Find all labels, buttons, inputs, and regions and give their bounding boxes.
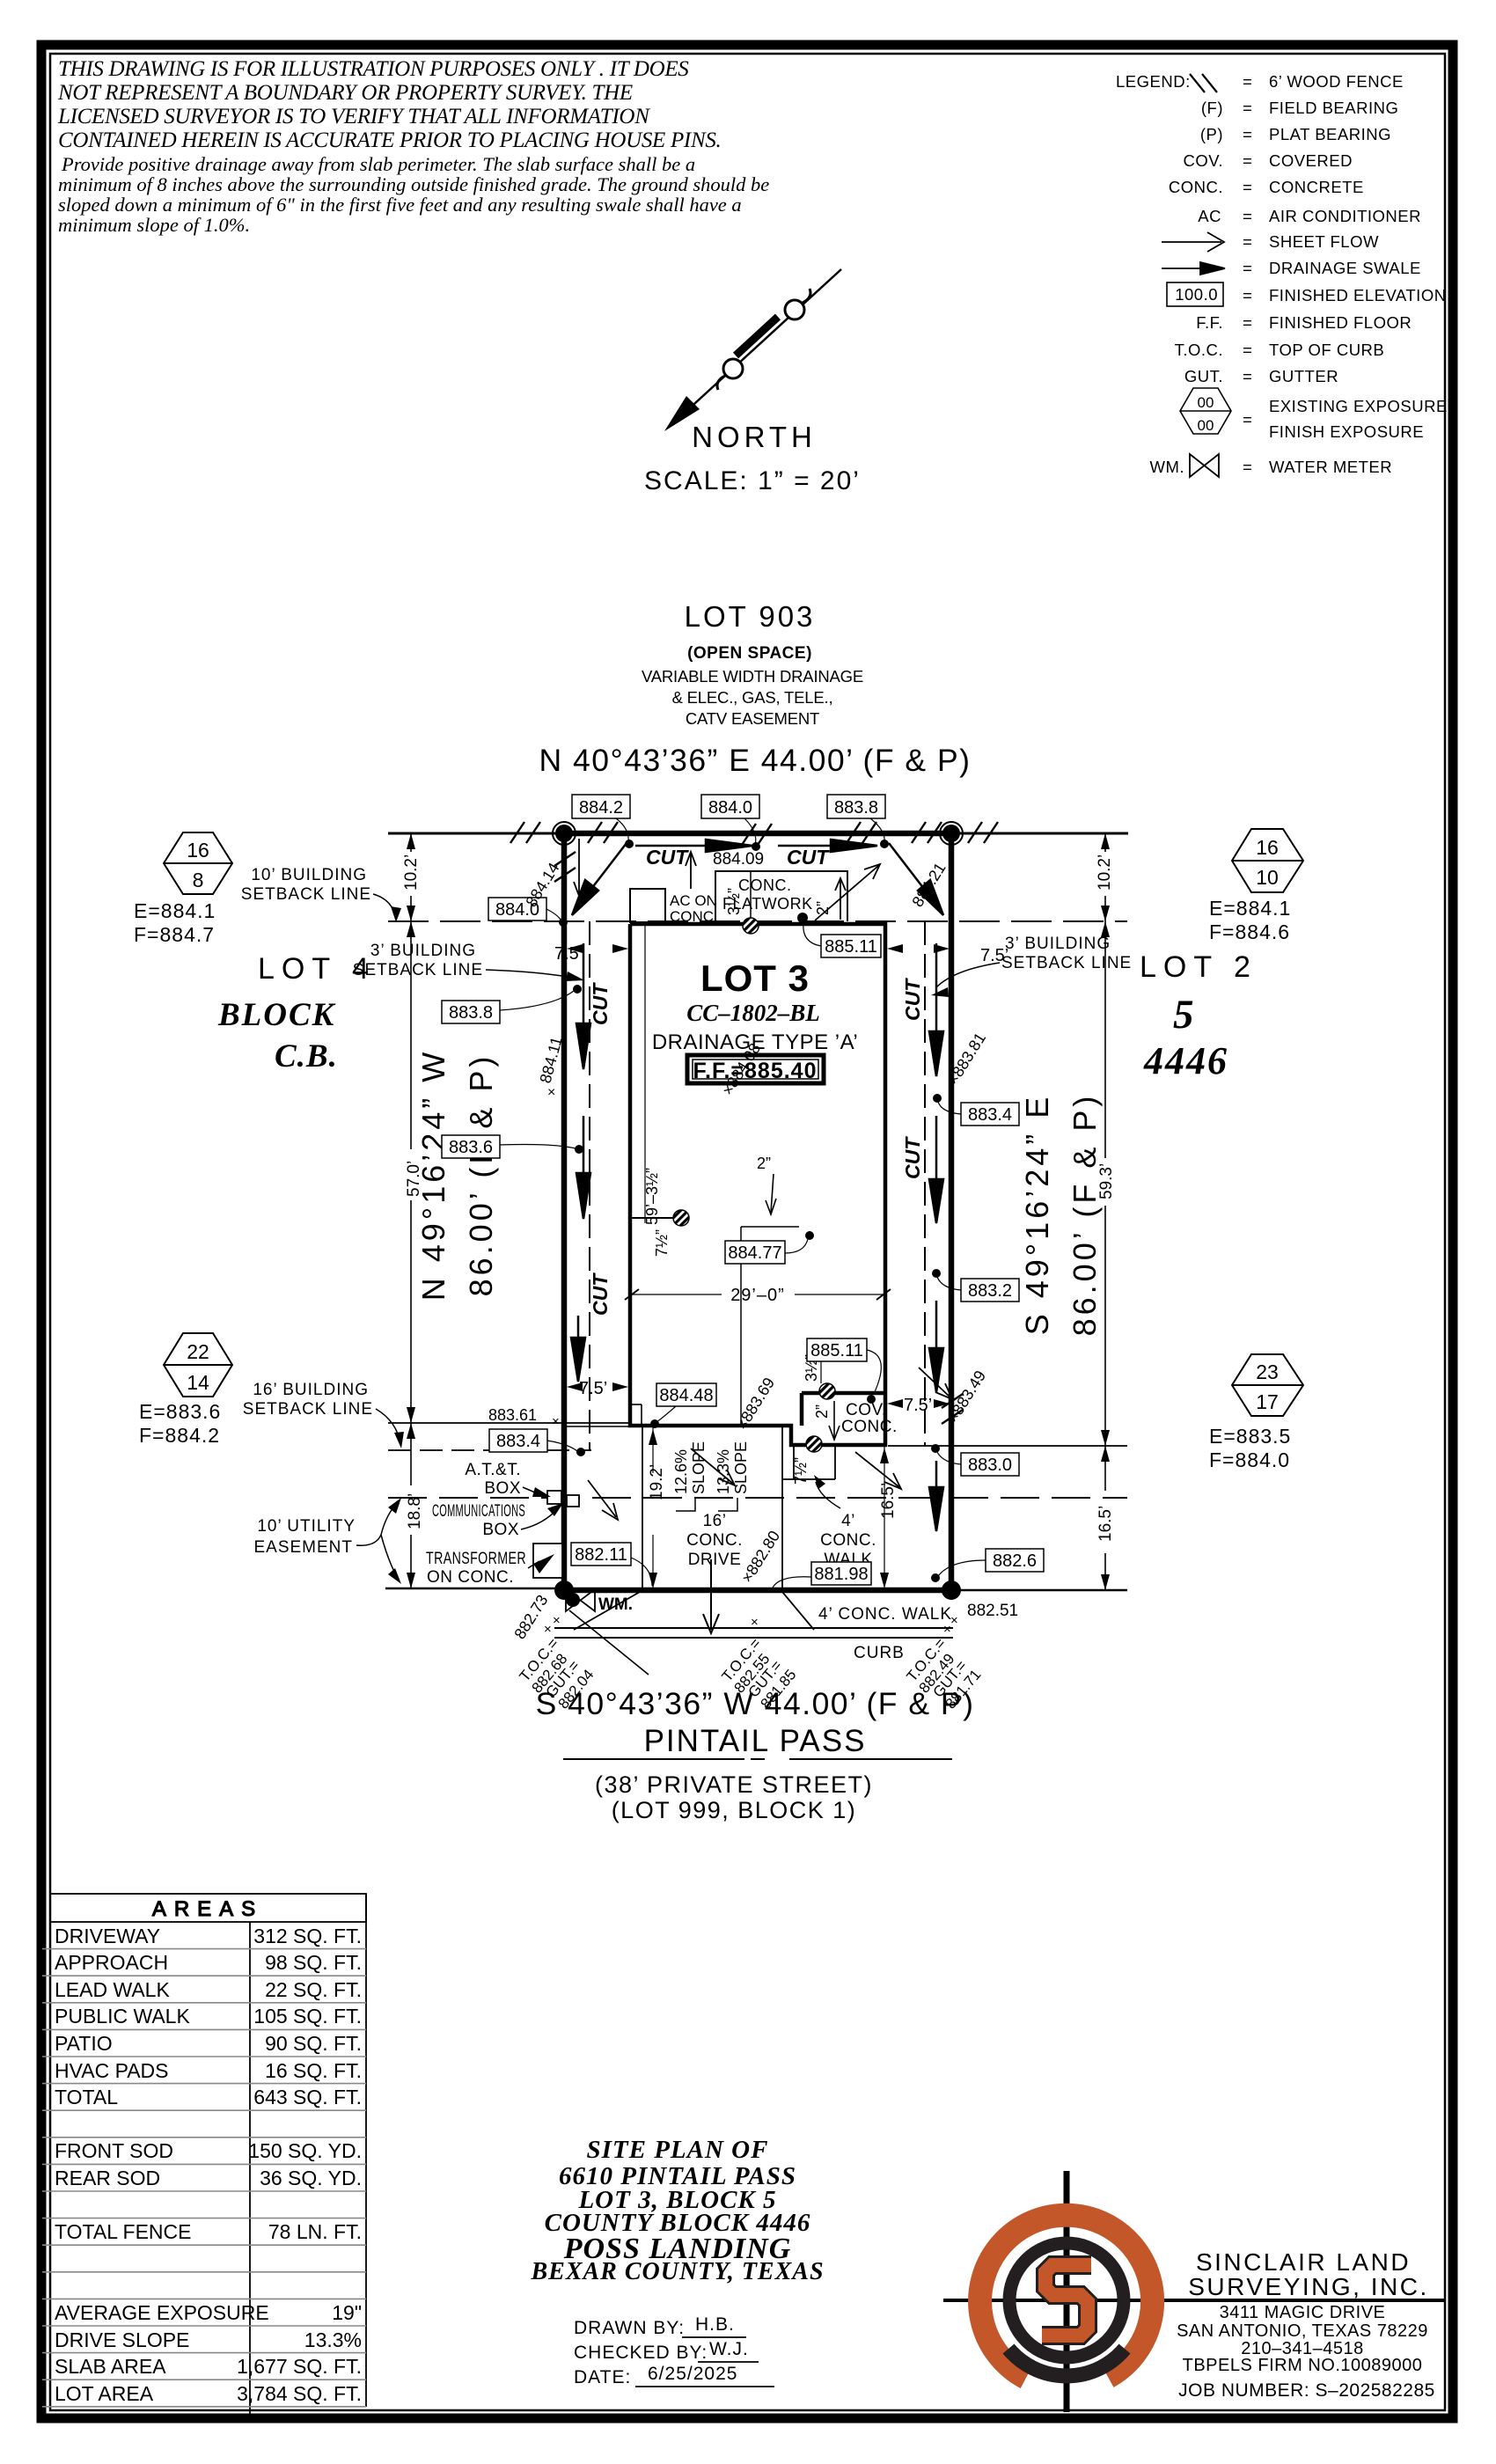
- svg-text:DRIVEWAY: DRIVEWAY: [55, 1925, 160, 1947]
- svg-text:TOP OF CURB: TOP OF CURB: [1269, 341, 1384, 359]
- svg-text:883.2: 883.2: [968, 1281, 1012, 1301]
- svg-text:F.F.: F.F.: [1196, 313, 1223, 332]
- svg-text:F=884.7: F=884.7: [134, 923, 215, 946]
- svg-text:minimum of 8 inches above the: minimum of 8 inches above the surroundin…: [58, 173, 769, 195]
- svg-text:DRAWN BY:: DRAWN BY:: [574, 2318, 685, 2338]
- svg-text:10.2’: 10.2’: [1096, 854, 1114, 891]
- svg-text:ON CONC.: ON CONC.: [427, 1568, 514, 1587]
- svg-text:FINISH EXPOSURE: FINISH EXPOSURE: [1269, 422, 1424, 441]
- svg-text:19.2’: 19.2’: [648, 1464, 666, 1500]
- svg-text:=: =: [1243, 410, 1252, 429]
- svg-text:90 SQ. FT.: 90 SQ. FT.: [265, 2032, 362, 2055]
- svg-text:CUT: CUT: [589, 982, 612, 1025]
- svg-text:BOX: BOX: [482, 1521, 519, 1539]
- svg-text:SETBACK LINE: SETBACK LINE: [1001, 954, 1132, 972]
- svg-text:CATV EASEMENT: CATV EASEMENT: [686, 709, 819, 728]
- svg-text:AIR CONDITIONER: AIR CONDITIONER: [1269, 207, 1421, 225]
- svg-text:885.11: 885.11: [825, 937, 877, 957]
- svg-text:(P): (P): [1200, 125, 1223, 143]
- svg-text:Provide positive drainage away: Provide positive drainage away from slab…: [61, 153, 695, 175]
- svg-text:CUT: CUT: [901, 1136, 924, 1179]
- svg-text:(F): (F): [1201, 99, 1223, 117]
- svg-text:7.5’: 7.5’: [554, 944, 583, 964]
- svg-text:884.77: 884.77: [728, 1243, 781, 1263]
- svg-text:884.2: 884.2: [579, 798, 623, 818]
- svg-text:16: 16: [1256, 836, 1279, 859]
- svg-text:883.6: 883.6: [449, 1138, 493, 1157]
- svg-text:882.11: 882.11: [575, 1545, 627, 1565]
- svg-text:7.5’: 7.5’: [579, 1379, 607, 1398]
- svg-text:12.6%: 12.6%: [672, 1449, 690, 1494]
- svg-text:NOT REPRESENT A BOUNDARY OR PR: NOT REPRESENT A BOUNDARY OR PROPERTY SUR…: [57, 81, 633, 105]
- svg-text:FIELD BEARING: FIELD BEARING: [1269, 99, 1398, 117]
- svg-text:=: =: [1243, 259, 1252, 277]
- svg-text:4’ CONC. WALK: 4’ CONC. WALK: [818, 1605, 952, 1624]
- svg-text:sloped down a minimum of 6" in: sloped down a minimum of 6" in the first…: [58, 194, 742, 216]
- svg-text:150 SQ. YD.: 150 SQ. YD.: [248, 2139, 362, 2162]
- svg-text:REAR SOD: REAR SOD: [55, 2167, 160, 2189]
- svg-text:884.48: 884.48: [659, 1386, 713, 1405]
- svg-text:LOT 903: LOT 903: [685, 600, 816, 633]
- svg-text:3½”: 3½”: [725, 888, 743, 915]
- svg-text:78 LN. FT.: 78 LN. FT.: [268, 2220, 362, 2243]
- svg-text:COV.: COV.: [1183, 151, 1223, 170]
- svg-text:E=884.1: E=884.1: [1209, 897, 1291, 920]
- svg-text:CONC.: CONC.: [686, 1531, 743, 1550]
- svg-text:FINISHED ELEVATION: FINISHED ELEVATION: [1269, 286, 1447, 304]
- svg-text:22: 22: [187, 1340, 209, 1363]
- svg-text:CUT: CUT: [646, 846, 689, 869]
- svg-text:105 SQ. FT.: 105 SQ. FT.: [253, 2005, 362, 2028]
- svg-text:COVERED: COVERED: [1269, 151, 1353, 170]
- svg-text:CONC.: CONC.: [738, 876, 792, 894]
- svg-text:SAN ANTONIO, TEXAS 78229: SAN ANTONIO, TEXAS 78229: [1177, 2321, 1428, 2341]
- svg-text:86.00’ (F & P): 86.00’ (F & P): [463, 1053, 499, 1297]
- svg-text:4446: 4446: [1143, 1039, 1228, 1082]
- svg-text:VARIABLE WIDTH DRAINAGE: VARIABLE WIDTH DRAINAGE: [642, 667, 863, 686]
- svg-text:EXISTING EXPOSURE: EXISTING EXPOSURE: [1269, 397, 1448, 415]
- svg-text:LICENSED SURVEYOR IS TO VERIFY: LICENSED SURVEYOR IS TO VERIFY THAT ALL …: [57, 105, 650, 128]
- svg-text:SITE PLAN OF: SITE PLAN OF: [587, 2136, 769, 2164]
- svg-text:00: 00: [1198, 417, 1214, 434]
- svg-text:883.8: 883.8: [449, 1003, 493, 1023]
- svg-text:16.5’: 16.5’: [1096, 1506, 1115, 1542]
- svg-text:TRANSFORMER: TRANSFORMER: [426, 1550, 526, 1568]
- svg-text:NORTH: NORTH: [692, 421, 817, 453]
- svg-text:883.0: 883.0: [968, 1456, 1012, 1475]
- svg-text:WM.: WM.: [1149, 458, 1184, 476]
- svg-text:GUT.: GUT.: [1184, 367, 1223, 385]
- svg-text:(LOT 999, BLOCK 1): (LOT 999, BLOCK 1): [612, 1797, 857, 1823]
- svg-text:CC–1802–BL: CC–1802–BL: [686, 1000, 820, 1026]
- svg-text:CONC.: CONC.: [841, 1418, 898, 1436]
- svg-text:DATE:: DATE:: [574, 2367, 631, 2387]
- svg-text:AC ON: AC ON: [670, 892, 717, 909]
- svg-text:312 SQ. FT.: 312 SQ. FT.: [253, 1925, 362, 1947]
- svg-text:883.8: 883.8: [834, 798, 878, 818]
- svg-text:×: ×: [552, 1414, 560, 1429]
- svg-text:HVAC PADS: HVAC PADS: [55, 2059, 169, 2082]
- svg-text:86.00’ (F & P): 86.00’ (F & P): [1067, 1093, 1103, 1337]
- svg-text:16: 16: [187, 839, 209, 862]
- svg-text:E=884.1: E=884.1: [134, 899, 216, 922]
- svg-text:PINTAIL PASS: PINTAIL PASS: [644, 1724, 867, 1758]
- svg-text:F=884.6: F=884.6: [1209, 920, 1290, 943]
- svg-text:LOT 2: LOT 2: [1140, 950, 1258, 984]
- svg-text:& ELEC., GAS, TELE.,: & ELEC., GAS, TELE.,: [672, 688, 833, 707]
- svg-text:=: =: [1243, 125, 1252, 143]
- svg-text:SLOPE: SLOPE: [732, 1441, 750, 1494]
- svg-text:8: 8: [193, 869, 204, 891]
- svg-text:LOT 3: LOT 3: [700, 957, 810, 999]
- svg-text:=: =: [1243, 72, 1252, 91]
- svg-text:LEGEND:: LEGEND:: [1116, 72, 1191, 91]
- svg-text:×: ×: [751, 1615, 759, 1630]
- svg-text:CUT: CUT: [589, 1272, 612, 1316]
- svg-text:JOB NUMBER: S–202582285: JOB NUMBER: S–202582285: [1178, 2380, 1435, 2401]
- svg-text:N 40°43’36” E 44.00’ (F & P): N 40°43’36” E 44.00’ (F & P): [539, 743, 972, 778]
- svg-text:LOT AREA: LOT AREA: [55, 2382, 154, 2405]
- svg-text:=: =: [1243, 313, 1252, 332]
- svg-text:(38’ PRIVATE STREET): (38’ PRIVATE STREET): [595, 1771, 873, 1798]
- svg-text:APPROACH: APPROACH: [55, 1951, 168, 1974]
- svg-text:883.61: 883.61: [488, 1406, 537, 1424]
- svg-text:5: 5: [1173, 992, 1194, 1038]
- svg-text:COV.: COV.: [846, 1401, 887, 1419]
- svg-text:FINISHED FLOOR: FINISHED FLOOR: [1269, 313, 1412, 332]
- svg-text:TBPELS FIRM NO.10089000: TBPELS FIRM NO.10089000: [1183, 2356, 1423, 2375]
- svg-text:PATIO: PATIO: [55, 2032, 113, 2055]
- svg-text:F=884.2: F=884.2: [139, 1424, 220, 1447]
- svg-text:T.O.C.: T.O.C.: [1175, 341, 1223, 359]
- svg-text:643 SQ. FT.: 643 SQ. FT.: [253, 2086, 362, 2108]
- svg-text:=: =: [1243, 232, 1252, 251]
- svg-text:CONCRETE: CONCRETE: [1269, 178, 1364, 196]
- svg-text:22 SQ. FT.: 22 SQ. FT.: [265, 1978, 362, 2001]
- svg-text:DRIVE: DRIVE: [688, 1551, 742, 1569]
- svg-text:3’ BUILDING: 3’ BUILDING: [370, 942, 476, 960]
- svg-text:LEAD WALK: LEAD WALK: [55, 1978, 170, 2001]
- svg-text:13.3%: 13.3%: [715, 1449, 732, 1494]
- svg-text:98 SQ. FT.: 98 SQ. FT.: [265, 1951, 362, 1974]
- svg-text:883.4: 883.4: [496, 1432, 540, 1451]
- svg-text:BOX: BOX: [484, 1479, 521, 1498]
- svg-text:S 49°16’24” E: S 49°16’24” E: [1019, 1094, 1055, 1336]
- svg-text:SHEET FLOW: SHEET FLOW: [1269, 232, 1379, 251]
- svg-text:WATER METER: WATER METER: [1269, 458, 1392, 476]
- svg-text:19": 19": [332, 2301, 362, 2324]
- svg-text:29’–0”: 29’–0”: [730, 1286, 785, 1305]
- svg-text:6’ WOOD FENCE: 6’ WOOD FENCE: [1269, 72, 1404, 91]
- svg-text:=: =: [1243, 286, 1252, 304]
- svg-text:CONC.: CONC.: [820, 1531, 876, 1550]
- svg-text:=: =: [1243, 178, 1252, 196]
- svg-text:10: 10: [1256, 866, 1279, 889]
- svg-text:×: ×: [544, 1622, 552, 1637]
- svg-text:E=883.5: E=883.5: [1209, 1425, 1291, 1448]
- svg-text:SETBACK LINE: SETBACK LINE: [243, 1400, 373, 1419]
- svg-text:AVERAGE EXPOSURE: AVERAGE EXPOSURE: [55, 2301, 269, 2324]
- svg-text:S 40°43’36” W 44.00’ (F & P): S 40°43’36” W 44.00’ (F & P): [536, 1686, 975, 1721]
- svg-text:59’–3½”: 59’–3½”: [643, 1168, 661, 1225]
- svg-text:AC: AC: [1198, 207, 1221, 225]
- svg-text:2”: 2”: [813, 1404, 831, 1419]
- svg-text:BLOCK: BLOCK: [217, 997, 336, 1033]
- svg-text:×: ×: [553, 1613, 561, 1628]
- svg-text:TOTAL FENCE: TOTAL FENCE: [55, 2220, 192, 2243]
- svg-text:CHECKED BY:: CHECKED BY:: [574, 2343, 708, 2363]
- svg-text:TOTAL: TOTAL: [55, 2086, 118, 2108]
- svg-text:=: =: [1243, 341, 1252, 359]
- svg-text:00: 00: [1198, 394, 1214, 411]
- svg-text:883.4: 883.4: [968, 1105, 1012, 1125]
- svg-text:16’: 16’: [703, 1512, 727, 1530]
- svg-text:AREAS: AREAS: [152, 1897, 263, 1921]
- svg-text:minimum slope of 1.0%.: minimum slope of 1.0%.: [58, 214, 250, 236]
- svg-text:18.8’: 18.8’: [406, 1493, 424, 1529]
- svg-text:6/25/2025: 6/25/2025: [648, 2364, 737, 2384]
- svg-text:7½”: 7½”: [792, 1457, 810, 1485]
- svg-text:CUT: CUT: [901, 978, 924, 1021]
- svg-text:PLAT BEARING: PLAT BEARING: [1269, 125, 1391, 143]
- svg-text:CONC.: CONC.: [670, 908, 718, 925]
- svg-text:884.0: 884.0: [708, 798, 752, 818]
- svg-text:7.5’: 7.5’: [904, 1396, 932, 1415]
- svg-text:4’: 4’: [841, 1512, 855, 1530]
- svg-text:SINCLAIR LAND: SINCLAIR LAND: [1196, 2248, 1411, 2276]
- svg-text:E=883.6: E=883.6: [139, 1400, 221, 1423]
- svg-text:882.6: 882.6: [993, 1551, 1037, 1571]
- svg-text:16.5’: 16.5’: [879, 1483, 898, 1519]
- svg-text:885.11: 885.11: [810, 1341, 863, 1360]
- svg-text:10’ BUILDING: 10’ BUILDING: [251, 866, 367, 884]
- svg-text:A.T.&T.: A.T.&T.: [465, 1461, 521, 1479]
- svg-text:3411 MAGIC DRIVE: 3411 MAGIC DRIVE: [1220, 2303, 1386, 2322]
- svg-text:882.51: 882.51: [967, 1602, 1018, 1620]
- svg-text:DRIVE SLOPE: DRIVE SLOPE: [55, 2328, 189, 2351]
- svg-text:=: =: [1243, 367, 1252, 385]
- svg-text:=: =: [1243, 151, 1252, 170]
- svg-text:881.98: 881.98: [814, 1565, 868, 1584]
- svg-text:GUTTER: GUTTER: [1269, 367, 1338, 385]
- svg-text:884.09: 884.09: [713, 850, 764, 869]
- svg-text:SLAB AREA: SLAB AREA: [55, 2355, 166, 2378]
- svg-text:COMMUNICATIONS: COMMUNICATIONS: [432, 1502, 525, 1521]
- svg-text:SCALE: 1” = 20’: SCALE: 1” = 20’: [644, 466, 861, 495]
- svg-text:1,677 SQ. FT.: 1,677 SQ. FT.: [237, 2355, 362, 2378]
- svg-text:=: =: [1243, 207, 1252, 225]
- svg-text:16 SQ. FT.: 16 SQ. FT.: [265, 2059, 362, 2082]
- svg-text:DRAINAGE SWALE: DRAINAGE SWALE: [1269, 259, 1421, 277]
- svg-text:BEXAR COUNTY, TEXAS: BEXAR COUNTY, TEXAS: [530, 2258, 824, 2285]
- svg-text:14: 14: [187, 1371, 209, 1394]
- svg-text:PUBLIC WALK: PUBLIC WALK: [55, 2005, 190, 2028]
- svg-text:=: =: [1243, 99, 1252, 117]
- svg-text:FRONT SOD: FRONT SOD: [55, 2139, 173, 2162]
- svg-text:SETBACK LINE: SETBACK LINE: [353, 961, 483, 979]
- svg-text:2”: 2”: [757, 1155, 771, 1172]
- svg-text:3’ BUILDING: 3’ BUILDING: [1005, 935, 1111, 953]
- svg-text:CURB: CURB: [854, 1644, 905, 1662]
- svg-text:EASEMENT: EASEMENT: [253, 1538, 353, 1557]
- svg-text:7½”: 7½”: [653, 1229, 671, 1257]
- svg-text:(OPEN SPACE): (OPEN SPACE): [687, 644, 812, 663]
- svg-text:×: ×: [547, 1085, 555, 1100]
- svg-text:SURVEYING, INC.: SURVEYING, INC.: [1188, 2273, 1428, 2300]
- svg-text:100.0: 100.0: [1175, 285, 1218, 304]
- svg-text:13.3%: 13.3%: [304, 2328, 362, 2351]
- svg-text:CUT: CUT: [787, 846, 830, 869]
- svg-text:7.5’: 7.5’: [980, 946, 1008, 965]
- svg-text:3,784 SQ. FT.: 3,784 SQ. FT.: [237, 2382, 362, 2405]
- svg-text:23: 23: [1256, 1360, 1279, 1383]
- svg-text:17: 17: [1256, 1390, 1279, 1413]
- svg-text:CONC.: CONC.: [1169, 178, 1223, 196]
- svg-text:N 49°16’24” W: N 49°16’24” W: [415, 1049, 451, 1302]
- svg-text:=: =: [1243, 458, 1252, 476]
- svg-text:C.B.: C.B.: [275, 1038, 338, 1074]
- svg-text:F=884.0: F=884.0: [1209, 1448, 1290, 1471]
- svg-text:W.J.: W.J.: [709, 2339, 749, 2359]
- svg-text:H.B.: H.B.: [695, 2314, 735, 2335]
- svg-text:10’ UTILITY: 10’ UTILITY: [257, 1517, 356, 1536]
- svg-text:SETBACK LINE: SETBACK LINE: [241, 885, 371, 904]
- svg-text:THIS DRAWING IS FOR ILLUSTRATI: THIS DRAWING IS FOR ILLUSTRATION PURPOSE…: [58, 57, 689, 81]
- svg-text:16’ BUILDING: 16’ BUILDING: [253, 1381, 369, 1399]
- svg-text:CONTAINED HEREIN IS ACCURATE P: CONTAINED HEREIN IS ACCURATE PRIOR TO PL…: [58, 128, 721, 152]
- svg-text:10.2’: 10.2’: [402, 854, 421, 891]
- svg-text:36 SQ. YD.: 36 SQ. YD.: [260, 2167, 362, 2189]
